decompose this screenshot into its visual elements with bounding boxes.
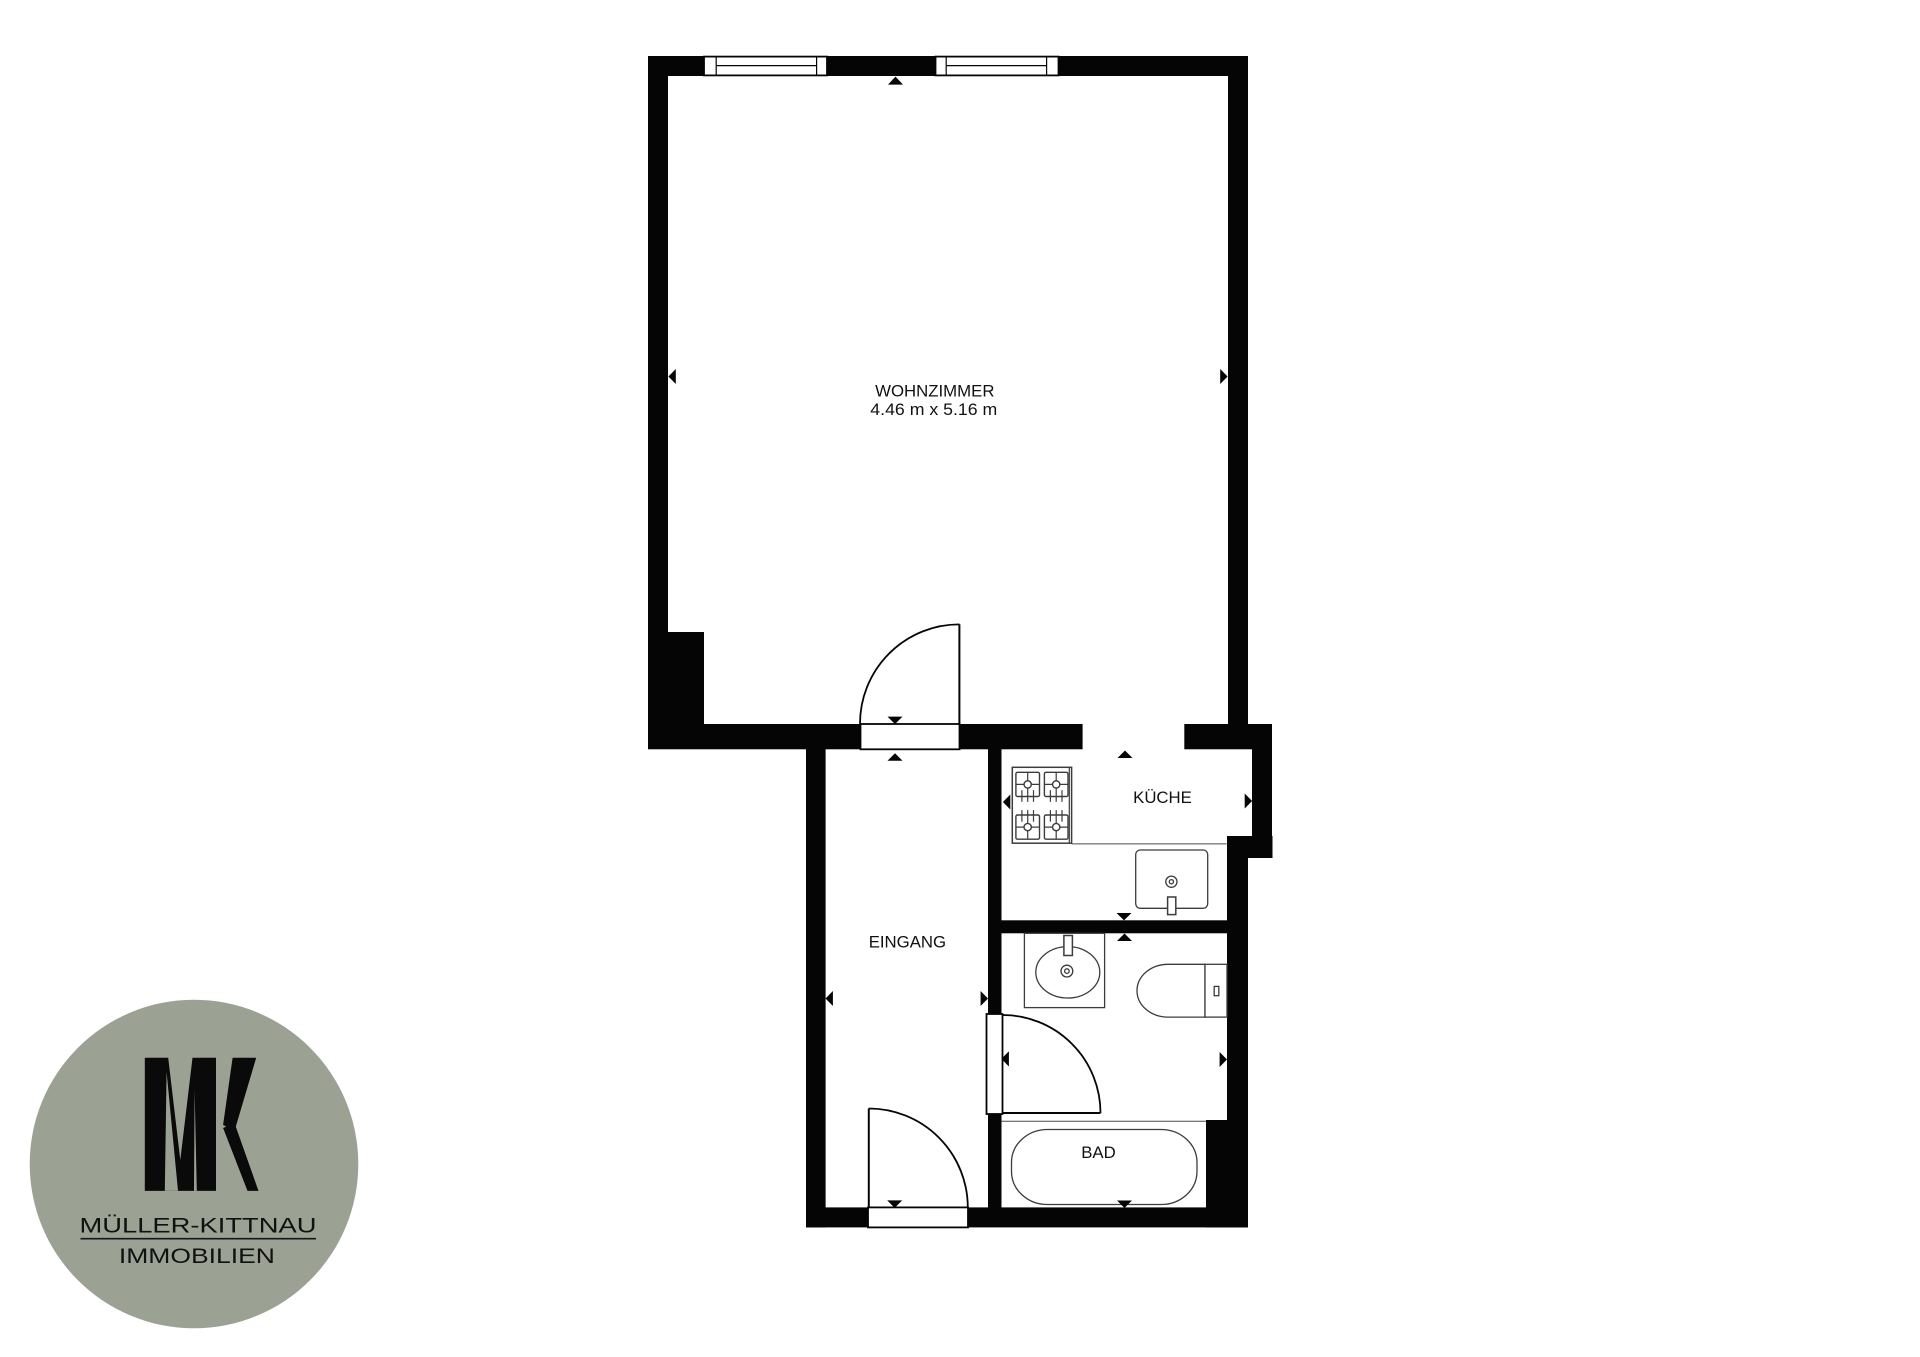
svg-text:WOHNZIMMER: WOHNZIMMER: [875, 382, 994, 401]
svg-text:MÜLLER-KITTNAU: MÜLLER-KITTNAU: [80, 1215, 317, 1238]
svg-text:IMMOBILIEN: IMMOBILIEN: [119, 1245, 275, 1268]
svg-text:EINGANG: EINGANG: [869, 932, 946, 951]
svg-text:KÜCHE: KÜCHE: [1133, 788, 1192, 807]
svg-text:4.46 m x 5.16 m: 4.46 m x 5.16 m: [870, 400, 997, 419]
svg-text:BAD: BAD: [1081, 1143, 1116, 1162]
